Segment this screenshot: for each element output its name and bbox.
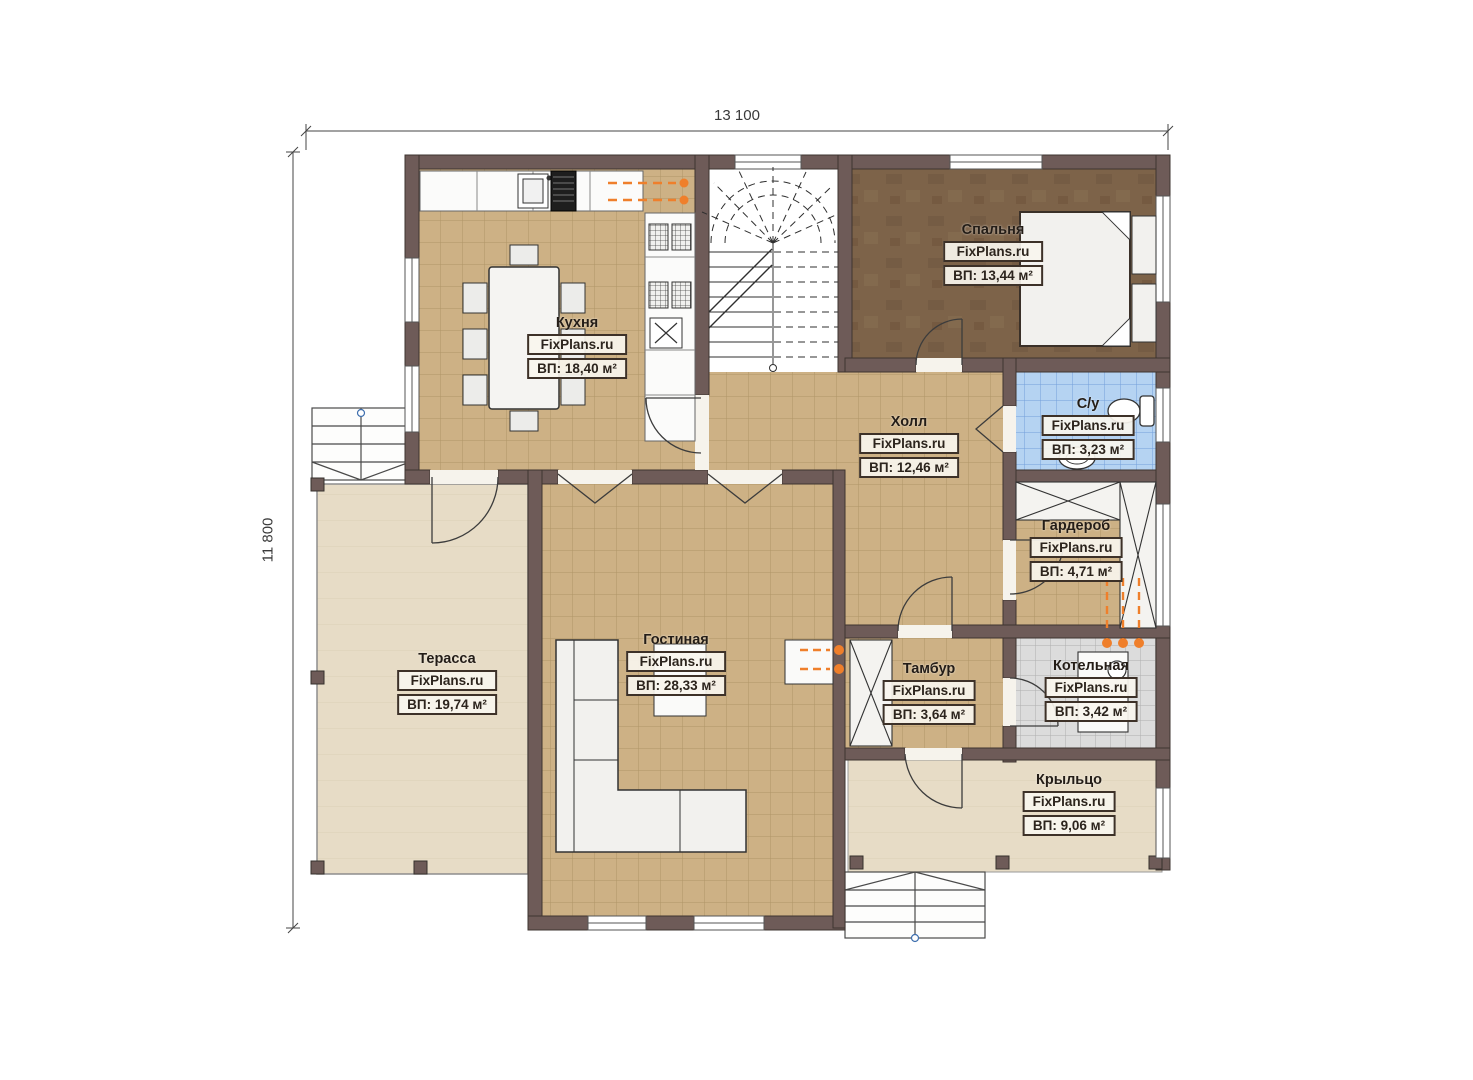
dimension-width: 13 100 [714,107,760,124]
dimension-height: 11 800 [260,518,277,563]
room-area: ВП: 13,44 м² [943,265,1043,286]
burner-icon [672,224,691,250]
room-area: ВП: 28,33 м² [626,675,726,696]
room-name: Холл [859,414,959,430]
room-watermark: FixPlans.ru [527,334,627,355]
cabinet [785,640,833,684]
room-area: ВП: 18,40 м² [527,358,627,379]
room-area: ВП: 3,64 м² [883,704,976,725]
room-name: Гостиная [626,632,726,648]
room-name: Крыльцо [1023,772,1116,788]
room-watermark: FixPlans.ru [943,241,1043,262]
room-label-living: Гостиная FixPlans.ru ВП: 28,33 м² [626,632,726,696]
room-watermark: FixPlans.ru [626,651,726,672]
room-label-bathroom: С/у FixPlans.ru ВП: 3,23 м² [1042,396,1135,460]
room-watermark: FixPlans.ru [1030,537,1123,558]
exterior-steps-porch [845,872,985,942]
toilet-tank [1140,396,1154,426]
burner-icon [649,282,668,308]
nightstand [1132,216,1156,274]
room-area: ВП: 19,74 м² [397,694,497,715]
room-label-terrace: Терасса FixPlans.ru ВП: 19,74 м² [397,651,497,715]
room-watermark: FixPlans.ru [1023,791,1116,812]
room-label-vestibule: Тамбур FixPlans.ru ВП: 3,64 м² [883,661,976,725]
nightstand [1132,284,1156,342]
room-name: Кухня [527,315,627,331]
room-name: Гардероб [1030,518,1123,534]
room-area: ВП: 3,42 м² [1045,701,1138,722]
room-label-hall: Холл FixPlans.ru ВП: 12,46 м² [859,414,959,478]
room-name: Спальня [943,222,1043,238]
room-area: ВП: 12,46 м² [859,457,959,478]
room-watermark: FixPlans.ru [1045,677,1138,698]
room-label-kitchen: Кухня FixPlans.ru ВП: 18,40 м² [527,315,627,379]
room-area: ВП: 3,23 м² [1042,439,1135,460]
burner-icon [672,282,691,308]
room-watermark: FixPlans.ru [1042,415,1135,436]
room-area: ВП: 9,06 м² [1023,815,1116,836]
room-name: Терасса [397,651,497,667]
room-label-porch: Крыльцо FixPlans.ru ВП: 9,06 м² [1023,772,1116,836]
floor-plan-drawing [0,0,1473,1080]
room-label-bedroom: Спальня FixPlans.ru ВП: 13,44 м² [943,222,1043,286]
room-label-boiler: Котельная FixPlans.ru ВП: 3,42 м² [1045,658,1138,722]
floor-plan: 13 100 11 800 Кухня FixPlans.ru ВП: 18,4… [0,0,1473,1080]
exterior-steps-left [312,408,410,480]
appliance-x-icon [650,318,682,348]
room-label-wardrobe: Гардероб FixPlans.ru ВП: 4,71 м² [1030,518,1123,582]
room-watermark: FixPlans.ru [859,433,959,454]
room-area: ВП: 4,71 м² [1030,561,1123,582]
room-name: Котельная [1045,658,1138,674]
burner-icon [649,224,668,250]
room-name: С/у [1042,396,1135,412]
room-watermark: FixPlans.ru [883,680,976,701]
room-watermark: FixPlans.ru [397,670,497,691]
room-name: Тамбур [883,661,976,677]
